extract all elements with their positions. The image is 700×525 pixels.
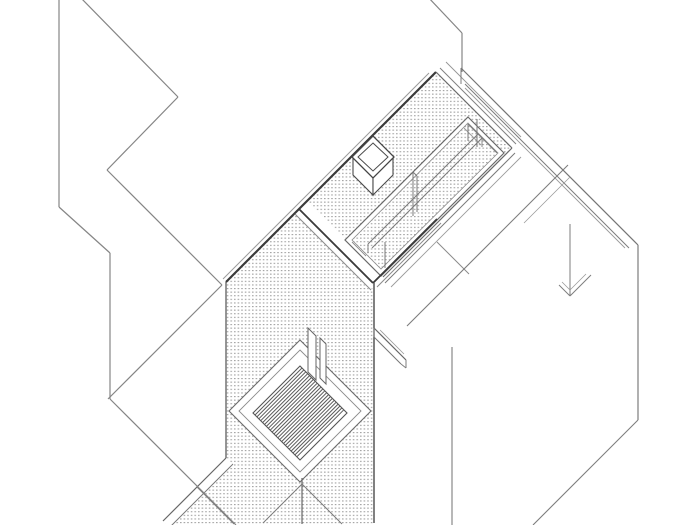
left-building-roof-ridge [79, 0, 178, 97]
boundary-wall-cap-foot [401, 364, 406, 368]
axonometric-drawing [0, 0, 700, 525]
roof-fin-left [308, 328, 316, 380]
roof-notch-right-arm [570, 275, 591, 296]
left-building-roof-valley [107, 170, 222, 285]
axonometric-drawing-canvas [0, 0, 700, 525]
left-building-south-edge [110, 399, 236, 525]
boundary-wall-cap-inner [380, 330, 404, 354]
right-building-roof-edge-echo [524, 177, 570, 223]
boundary-wall-cap-top [374, 328, 406, 360]
left-building-rear-roof-edge [427, 0, 462, 33]
left-building-roof-hip [107, 97, 178, 170]
right-building-base-edge [533, 420, 638, 525]
roof-notch-left-arm [559, 285, 570, 296]
roof-fin-right [320, 338, 326, 384]
left-building-roof-fold [108, 285, 222, 399]
left-building-base-step [59, 207, 110, 253]
